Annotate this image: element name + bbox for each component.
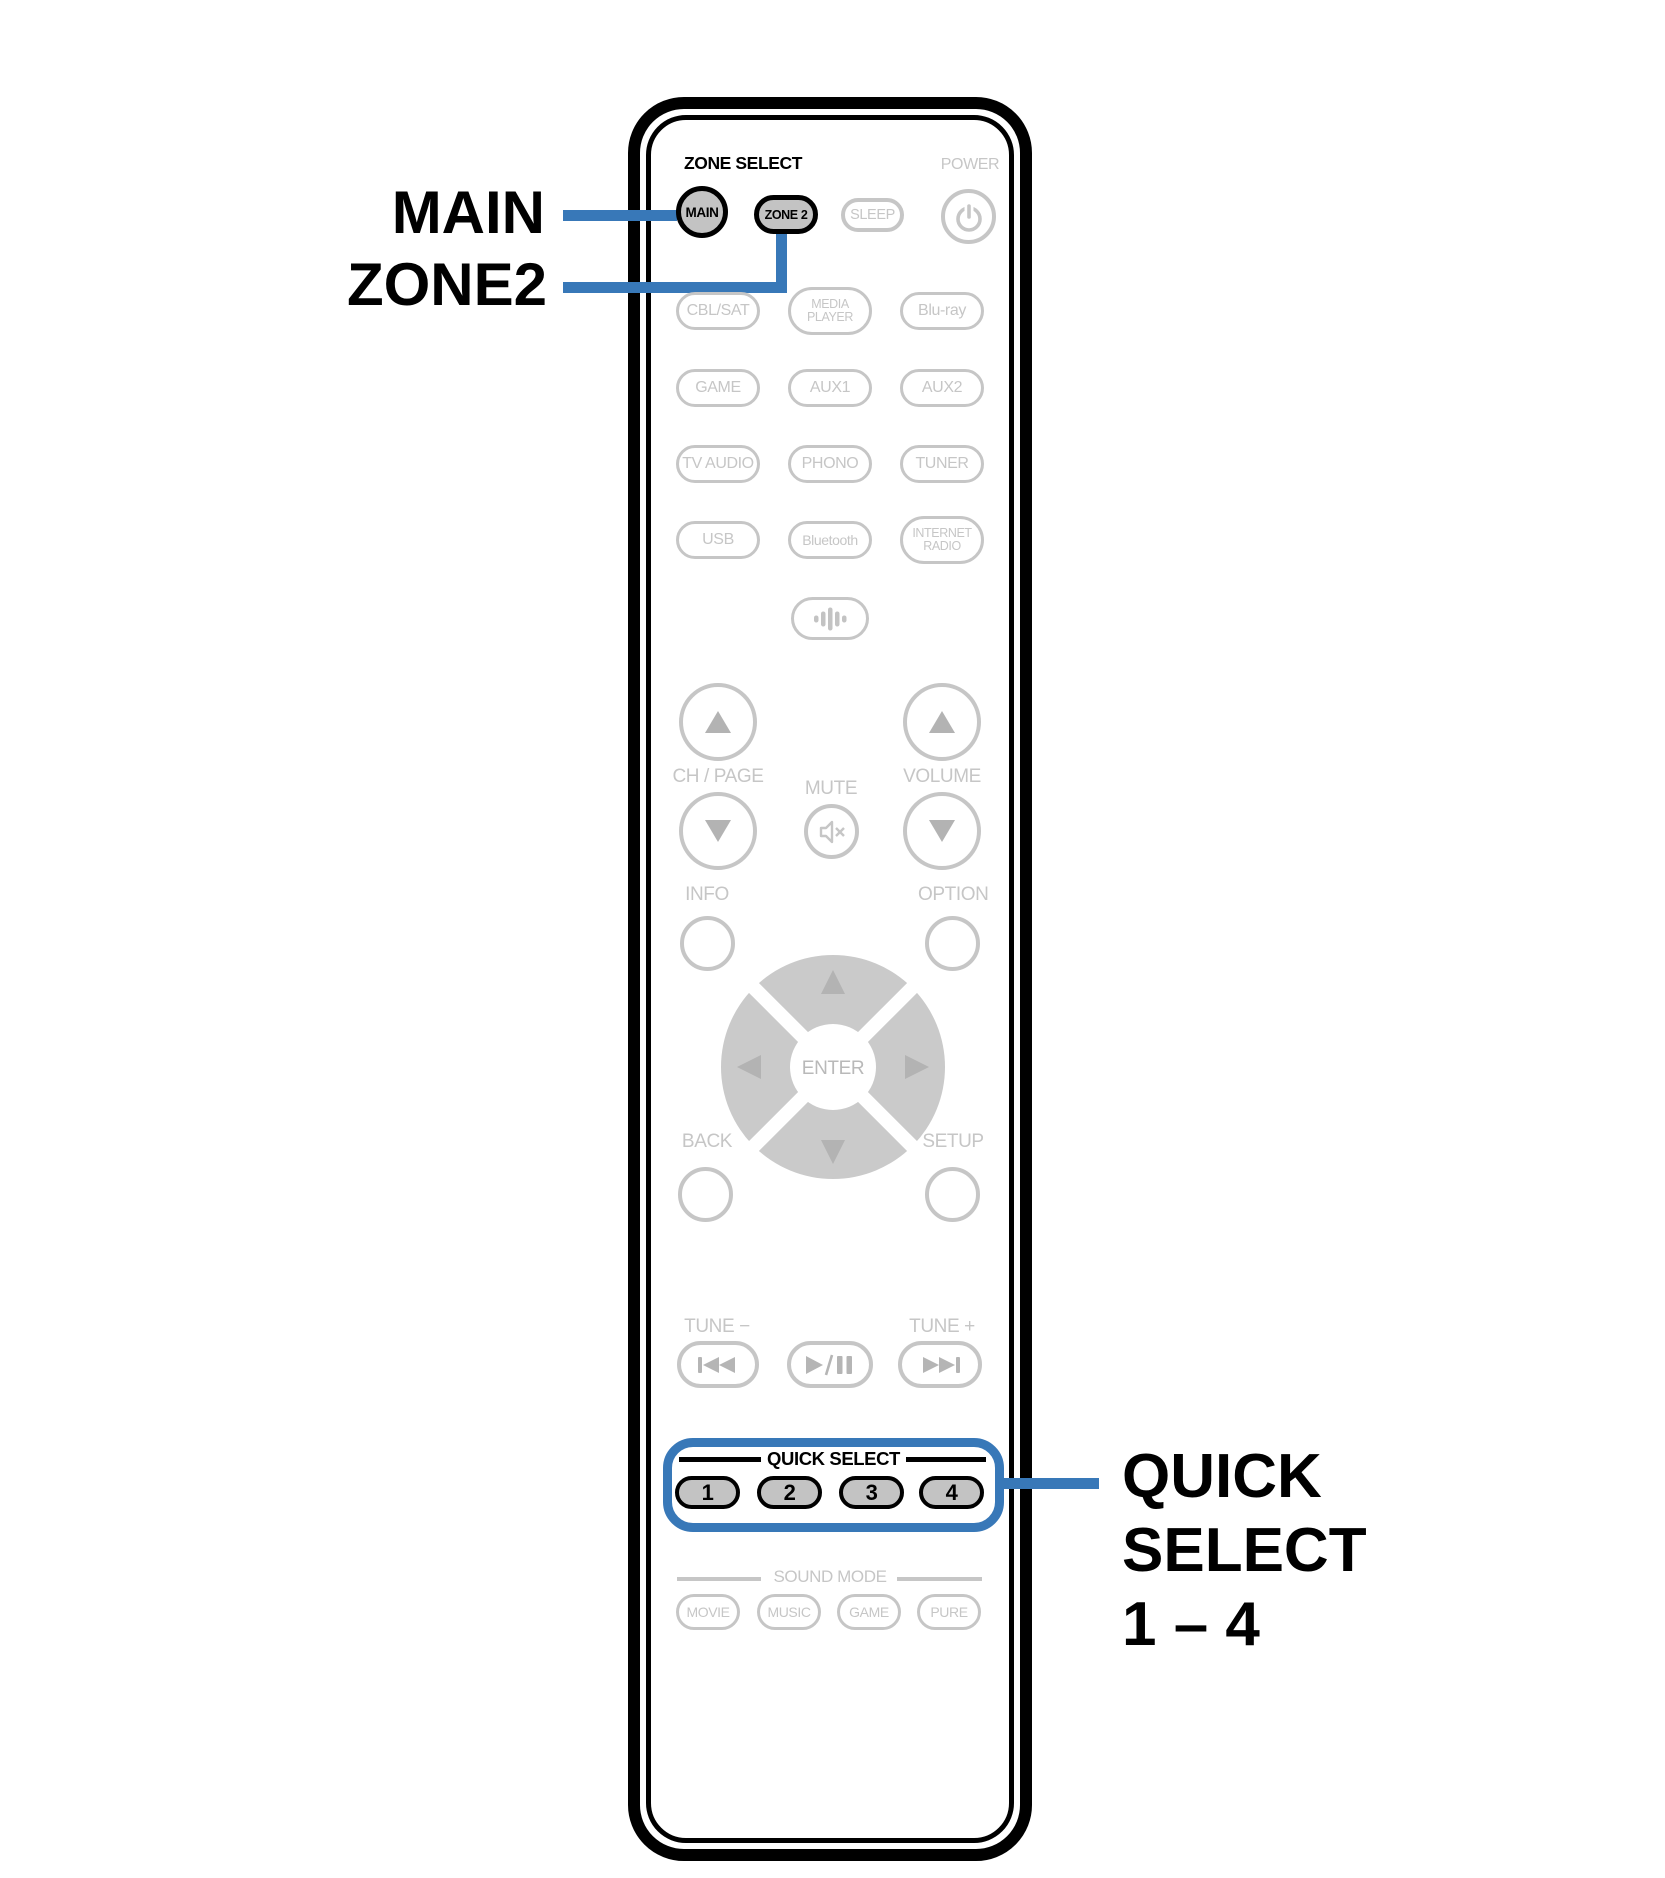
sound-mode-label: SOUND MODE — [763, 1567, 897, 1587]
callout-quick-select-line1: QUICK — [1122, 1442, 1542, 1512]
previous-track-button[interactable] — [677, 1341, 759, 1388]
quick-select-left-rule — [679, 1457, 761, 1462]
sound-mode-music-button[interactable]: MUSIC — [757, 1594, 821, 1630]
source-button-cbl-sat[interactable]: CBL/SAT — [676, 292, 760, 330]
callout-zone2-line-horizontal — [563, 282, 787, 293]
up-arrow-icon — [705, 711, 731, 733]
enter-button[interactable]: ENTER — [778, 1058, 888, 1080]
source-button-aux1[interactable]: AUX1 — [788, 369, 872, 407]
channel-down-button[interactable] — [679, 792, 757, 870]
power-button[interactable] — [941, 189, 996, 244]
source-button-game[interactable]: GAME — [676, 369, 760, 407]
sound-mode-game-button[interactable]: GAME — [837, 1594, 901, 1630]
play-pause-button[interactable] — [787, 1341, 873, 1388]
source-button-internet-radio[interactable]: INTERNET RADIO — [900, 516, 984, 564]
quick-select-4-button[interactable]: 4 — [919, 1476, 984, 1509]
volume-down-button[interactable] — [903, 792, 981, 870]
source-button-phono[interactable]: PHONO — [788, 445, 872, 483]
ch-page-label: CH / PAGE — [662, 766, 774, 788]
quick-select-3-button[interactable]: 3 — [839, 1476, 904, 1509]
quick-select-2-button[interactable]: 2 — [757, 1476, 822, 1509]
play-pause-icon — [803, 1354, 857, 1376]
mute-button[interactable] — [804, 804, 859, 859]
zone-select-label: ZONE SELECT — [663, 153, 823, 174]
next-track-button[interactable] — [898, 1341, 982, 1388]
next-track-icon — [917, 1355, 963, 1375]
previous-track-icon — [695, 1355, 741, 1375]
source-button-media-player[interactable]: MEDIA PLAYER — [788, 287, 872, 335]
zone2-button[interactable]: ZONE 2 — [754, 195, 818, 234]
sound-mode-pure-button[interactable]: PURE — [917, 1594, 981, 1630]
back-label: BACK — [678, 1131, 736, 1153]
callout-quick-select-line2: SELECT — [1122, 1516, 1542, 1586]
callout-main-label: MAIN — [245, 183, 545, 243]
back-button[interactable] — [678, 1167, 733, 1222]
info-label: INFO — [678, 884, 736, 906]
down-arrow-icon — [929, 820, 955, 842]
quick-select-right-rule — [906, 1457, 986, 1462]
source-button-blu-ray[interactable]: Blu-ray — [900, 292, 984, 330]
quick-select-label: QUICK SELECT — [763, 1448, 904, 1470]
mute-icon — [816, 816, 848, 848]
sound-mode-movie-button[interactable]: MOVIE — [676, 1594, 740, 1630]
source-button-tv-audio[interactable]: TV AUDIO — [676, 445, 760, 483]
sound-mode-left-rule — [677, 1577, 761, 1581]
up-arrow-icon — [929, 711, 955, 733]
setup-label: SETUP — [922, 1131, 984, 1153]
volume-label: VOLUME — [886, 766, 998, 788]
down-arrow-icon — [705, 820, 731, 842]
option-label: OPTION — [918, 884, 988, 906]
source-button-tuner[interactable]: TUNER — [900, 445, 984, 483]
tune-plus-label: TUNE + — [886, 1316, 998, 1338]
source-button-bluetooth[interactable]: Bluetooth — [788, 521, 872, 559]
source-button-usb[interactable]: USB — [676, 521, 760, 559]
power-label: POWER — [918, 156, 1022, 174]
equalizer-icon — [808, 605, 852, 633]
source-button-aux2[interactable]: AUX2 — [900, 369, 984, 407]
tune-minus-label: TUNE − — [661, 1316, 773, 1338]
dimmer-button[interactable] — [791, 597, 869, 640]
figure-canvas: MAIN ZONE2 QUICK SELECT 1 – 4 ZONE SELEC… — [0, 0, 1665, 1878]
main-zone-button[interactable]: MAIN — [676, 186, 728, 238]
callout-quick-select-line3: 1 – 4 — [1122, 1590, 1542, 1660]
quick-select-1-button[interactable]: 1 — [675, 1476, 740, 1509]
power-icon — [952, 200, 986, 234]
callout-main-line — [563, 210, 677, 221]
callout-zone2-label: ZONE2 — [245, 255, 547, 315]
channel-up-button[interactable] — [679, 683, 757, 761]
volume-up-button[interactable] — [903, 683, 981, 761]
mute-label: MUTE — [789, 778, 873, 800]
callout-quick-select-line — [1000, 1478, 1099, 1489]
setup-button[interactable] — [925, 1167, 980, 1222]
sleep-button[interactable]: SLEEP — [841, 198, 904, 232]
sound-mode-right-rule — [897, 1577, 982, 1581]
